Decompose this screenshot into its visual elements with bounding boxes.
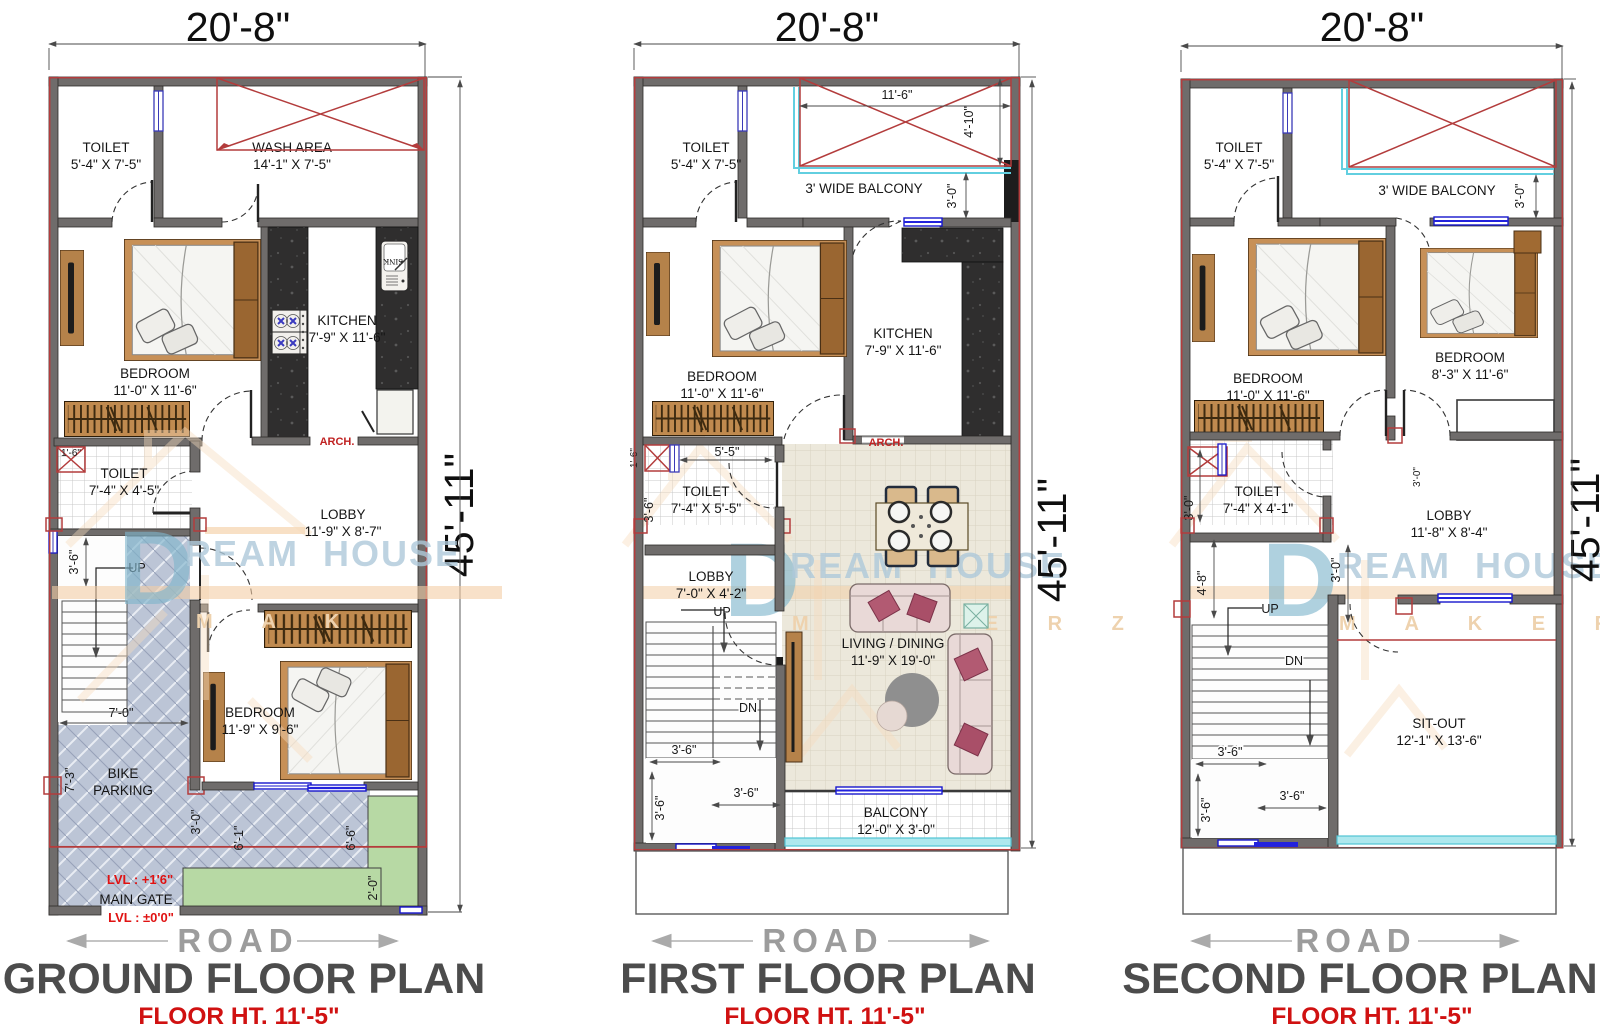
svg-text:7'-4" X 4'-5": 7'-4" X 4'-5": [89, 483, 159, 498]
svg-text:12'-1" X 13'-6": 12'-1" X 13'-6": [1396, 733, 1481, 748]
svg-text:D: D: [724, 522, 800, 639]
svg-text:20'-8": 20'-8": [186, 4, 290, 50]
svg-text:BEDROOM: BEDROOM: [1435, 350, 1505, 365]
svg-text:KITCHEN: KITCHEN: [317, 313, 376, 328]
svg-text:BEDROOM: BEDROOM: [687, 369, 757, 384]
svg-text:GROUND FLOOR PLAN: GROUND FLOOR PLAN: [3, 955, 486, 1003]
svg-text:45'-11": 45'-11": [1562, 458, 1600, 582]
svg-text:11'-0" X 11'-6": 11'-0" X 11'-6": [1226, 388, 1309, 403]
svg-text:7'-4" X 4'-1": 7'-4" X 4'-1": [1223, 501, 1293, 516]
svg-text:4'-10": 4'-10": [962, 106, 976, 138]
svg-text:DN: DN: [1285, 654, 1303, 668]
svg-text:6'-6": 6'-6": [344, 826, 358, 851]
svg-text:MAIN GATE: MAIN GATE: [99, 892, 172, 907]
svg-text:5'-5": 5'-5": [715, 445, 740, 459]
svg-text:LOBBY: LOBBY: [1426, 508, 1471, 523]
svg-text:7'-3": 7'-3": [63, 768, 77, 793]
svg-text:KITCHEN: KITCHEN: [873, 326, 932, 341]
svg-text:TOILET: TOILET: [1234, 484, 1281, 499]
svg-text:11'-8" X 8'-4": 11'-8" X 8'-4": [1411, 525, 1488, 540]
svg-text:FLOOR HT. 11'-5": FLOOR HT. 11'-5": [724, 1003, 925, 1030]
svg-text:LVL : +1'6": LVL : +1'6": [107, 872, 173, 887]
svg-text:ARCH.: ARCH.: [869, 437, 904, 449]
svg-text:11'-0" X 11'-6": 11'-0" X 11'-6": [113, 383, 196, 398]
svg-text:7'-9" X 11'-6": 7'-9" X 11'-6": [865, 343, 942, 358]
svg-text:3'-6": 3'-6": [67, 550, 81, 575]
svg-text:M A K: M A K: [196, 611, 361, 633]
svg-text:TOILET: TOILET: [1215, 140, 1262, 155]
svg-text:2'-0": 2'-0": [366, 876, 380, 901]
svg-text:LIVING / DINING: LIVING / DINING: [842, 636, 945, 651]
svg-text:11'-6": 11'-6": [882, 88, 913, 102]
svg-text:20'-8": 20'-8": [775, 4, 879, 50]
svg-text:3'-6": 3'-6": [1280, 789, 1305, 803]
svg-text:FLOOR HT. 11'-5": FLOOR HT. 11'-5": [1271, 1003, 1472, 1030]
svg-text:3'-0": 3'-0": [1513, 184, 1527, 209]
svg-text:6'-1": 6'-1": [232, 826, 246, 851]
svg-text:UP: UP: [713, 605, 730, 619]
svg-text:20'-8": 20'-8": [1320, 4, 1424, 50]
svg-text:7'-4" X 5'-5": 7'-4" X 5'-5": [671, 501, 741, 516]
svg-text:LOBBY: LOBBY: [320, 507, 365, 522]
svg-text:14'-1" X 7'-5": 14'-1" X 7'-5": [253, 157, 331, 172]
svg-text:DN: DN: [739, 701, 757, 715]
svg-text:3' WIDE BALCONY: 3' WIDE BALCONY: [805, 181, 922, 196]
svg-text:WASH AREA: WASH AREA: [252, 140, 332, 155]
svg-text:UP: UP: [1261, 602, 1278, 616]
svg-text:FIRST FLOOR PLAN: FIRST FLOOR PLAN: [620, 955, 1036, 1003]
svg-text:45'-11": 45'-11": [1029, 478, 1075, 602]
svg-text:3'-6": 3'-6": [653, 796, 667, 821]
svg-text:5'-4" X 7'-5": 5'-4" X 7'-5": [1204, 157, 1274, 172]
svg-text:BEDROOM: BEDROOM: [1233, 371, 1303, 386]
svg-text:BIKE: BIKE: [108, 766, 139, 781]
svg-text:PARKING: PARKING: [93, 783, 153, 798]
svg-text:TOILET: TOILET: [100, 466, 147, 481]
svg-text:ARCH.: ARCH.: [320, 436, 355, 448]
svg-text:TOILET: TOILET: [682, 484, 729, 499]
svg-text:5'-4" X 7'-5": 5'-4" X 7'-5": [671, 157, 741, 172]
svg-text:7'-0": 7'-0": [109, 706, 134, 720]
svg-text:ROAD: ROAD: [177, 922, 298, 959]
svg-text:7'-0" X 4'-2": 7'-0" X 4'-2": [676, 586, 746, 601]
svg-text:LVL : ±0'0": LVL : ±0'0": [108, 910, 174, 925]
svg-text:SECOND FLOOR PLAN: SECOND FLOOR PLAN: [1122, 955, 1597, 1003]
svg-text:3' WIDE BALCONY: 3' WIDE BALCONY: [1378, 183, 1495, 198]
svg-text:FLOOR HT. 11'-5": FLOOR HT. 11'-5": [138, 1003, 339, 1030]
svg-text:BEDROOM: BEDROOM: [120, 366, 190, 381]
svg-text:11'-0" X 11'-6": 11'-0" X 11'-6": [680, 386, 763, 401]
svg-text:ROAD: ROAD: [762, 922, 883, 959]
svg-text:3'-0": 3'-0": [1182, 496, 1196, 521]
svg-text:BEDROOM: BEDROOM: [225, 705, 295, 720]
svg-text:3'-6": 3'-6": [672, 743, 697, 757]
svg-text:3'-0": 3'-0": [189, 810, 203, 835]
svg-text:TOILET: TOILET: [682, 140, 729, 155]
svg-text:3'-6": 3'-6": [734, 786, 759, 800]
svg-text:11'-9" X 19'-0": 11'-9" X 19'-0": [851, 653, 935, 668]
svg-text:LOBBY: LOBBY: [688, 569, 733, 584]
svg-text:ROAD: ROAD: [1295, 922, 1416, 959]
svg-text:TOILET: TOILET: [82, 140, 129, 155]
svg-text:3'-0": 3'-0": [1412, 467, 1423, 487]
svg-text:SIT-OUT: SIT-OUT: [1412, 716, 1465, 731]
svg-text:5'-4" X 7'-5": 5'-4" X 7'-5": [71, 157, 141, 172]
svg-text:3'-0": 3'-0": [945, 184, 959, 209]
svg-text:4'-8": 4'-8": [1195, 571, 1209, 596]
svg-text:3'-0": 3'-0": [1329, 558, 1343, 583]
svg-text:REAM HOUSE: REAM HOUSE: [185, 533, 461, 574]
svg-text:3'-6": 3'-6": [642, 498, 656, 523]
svg-text:3'-6": 3'-6": [1218, 745, 1243, 759]
svg-text:7'-9" X 11'-6": 7'-9" X 11'-6": [309, 330, 386, 345]
svg-text:11'-9" X 8'-7": 11'-9" X 8'-7": [305, 524, 382, 539]
svg-text:BALCONY: BALCONY: [864, 805, 929, 820]
svg-text:8'-3" X 11'-6": 8'-3" X 11'-6": [1432, 367, 1509, 382]
svg-text:12'-0" X 3'-0": 12'-0" X 3'-0": [857, 822, 935, 837]
svg-text:3'-6": 3'-6": [1199, 798, 1213, 823]
svg-text:1'-6": 1'-6": [61, 448, 81, 459]
svg-text:D: D: [118, 510, 194, 627]
svg-text:11'-9" X 9'-6": 11'-9" X 9'-6": [222, 722, 299, 737]
